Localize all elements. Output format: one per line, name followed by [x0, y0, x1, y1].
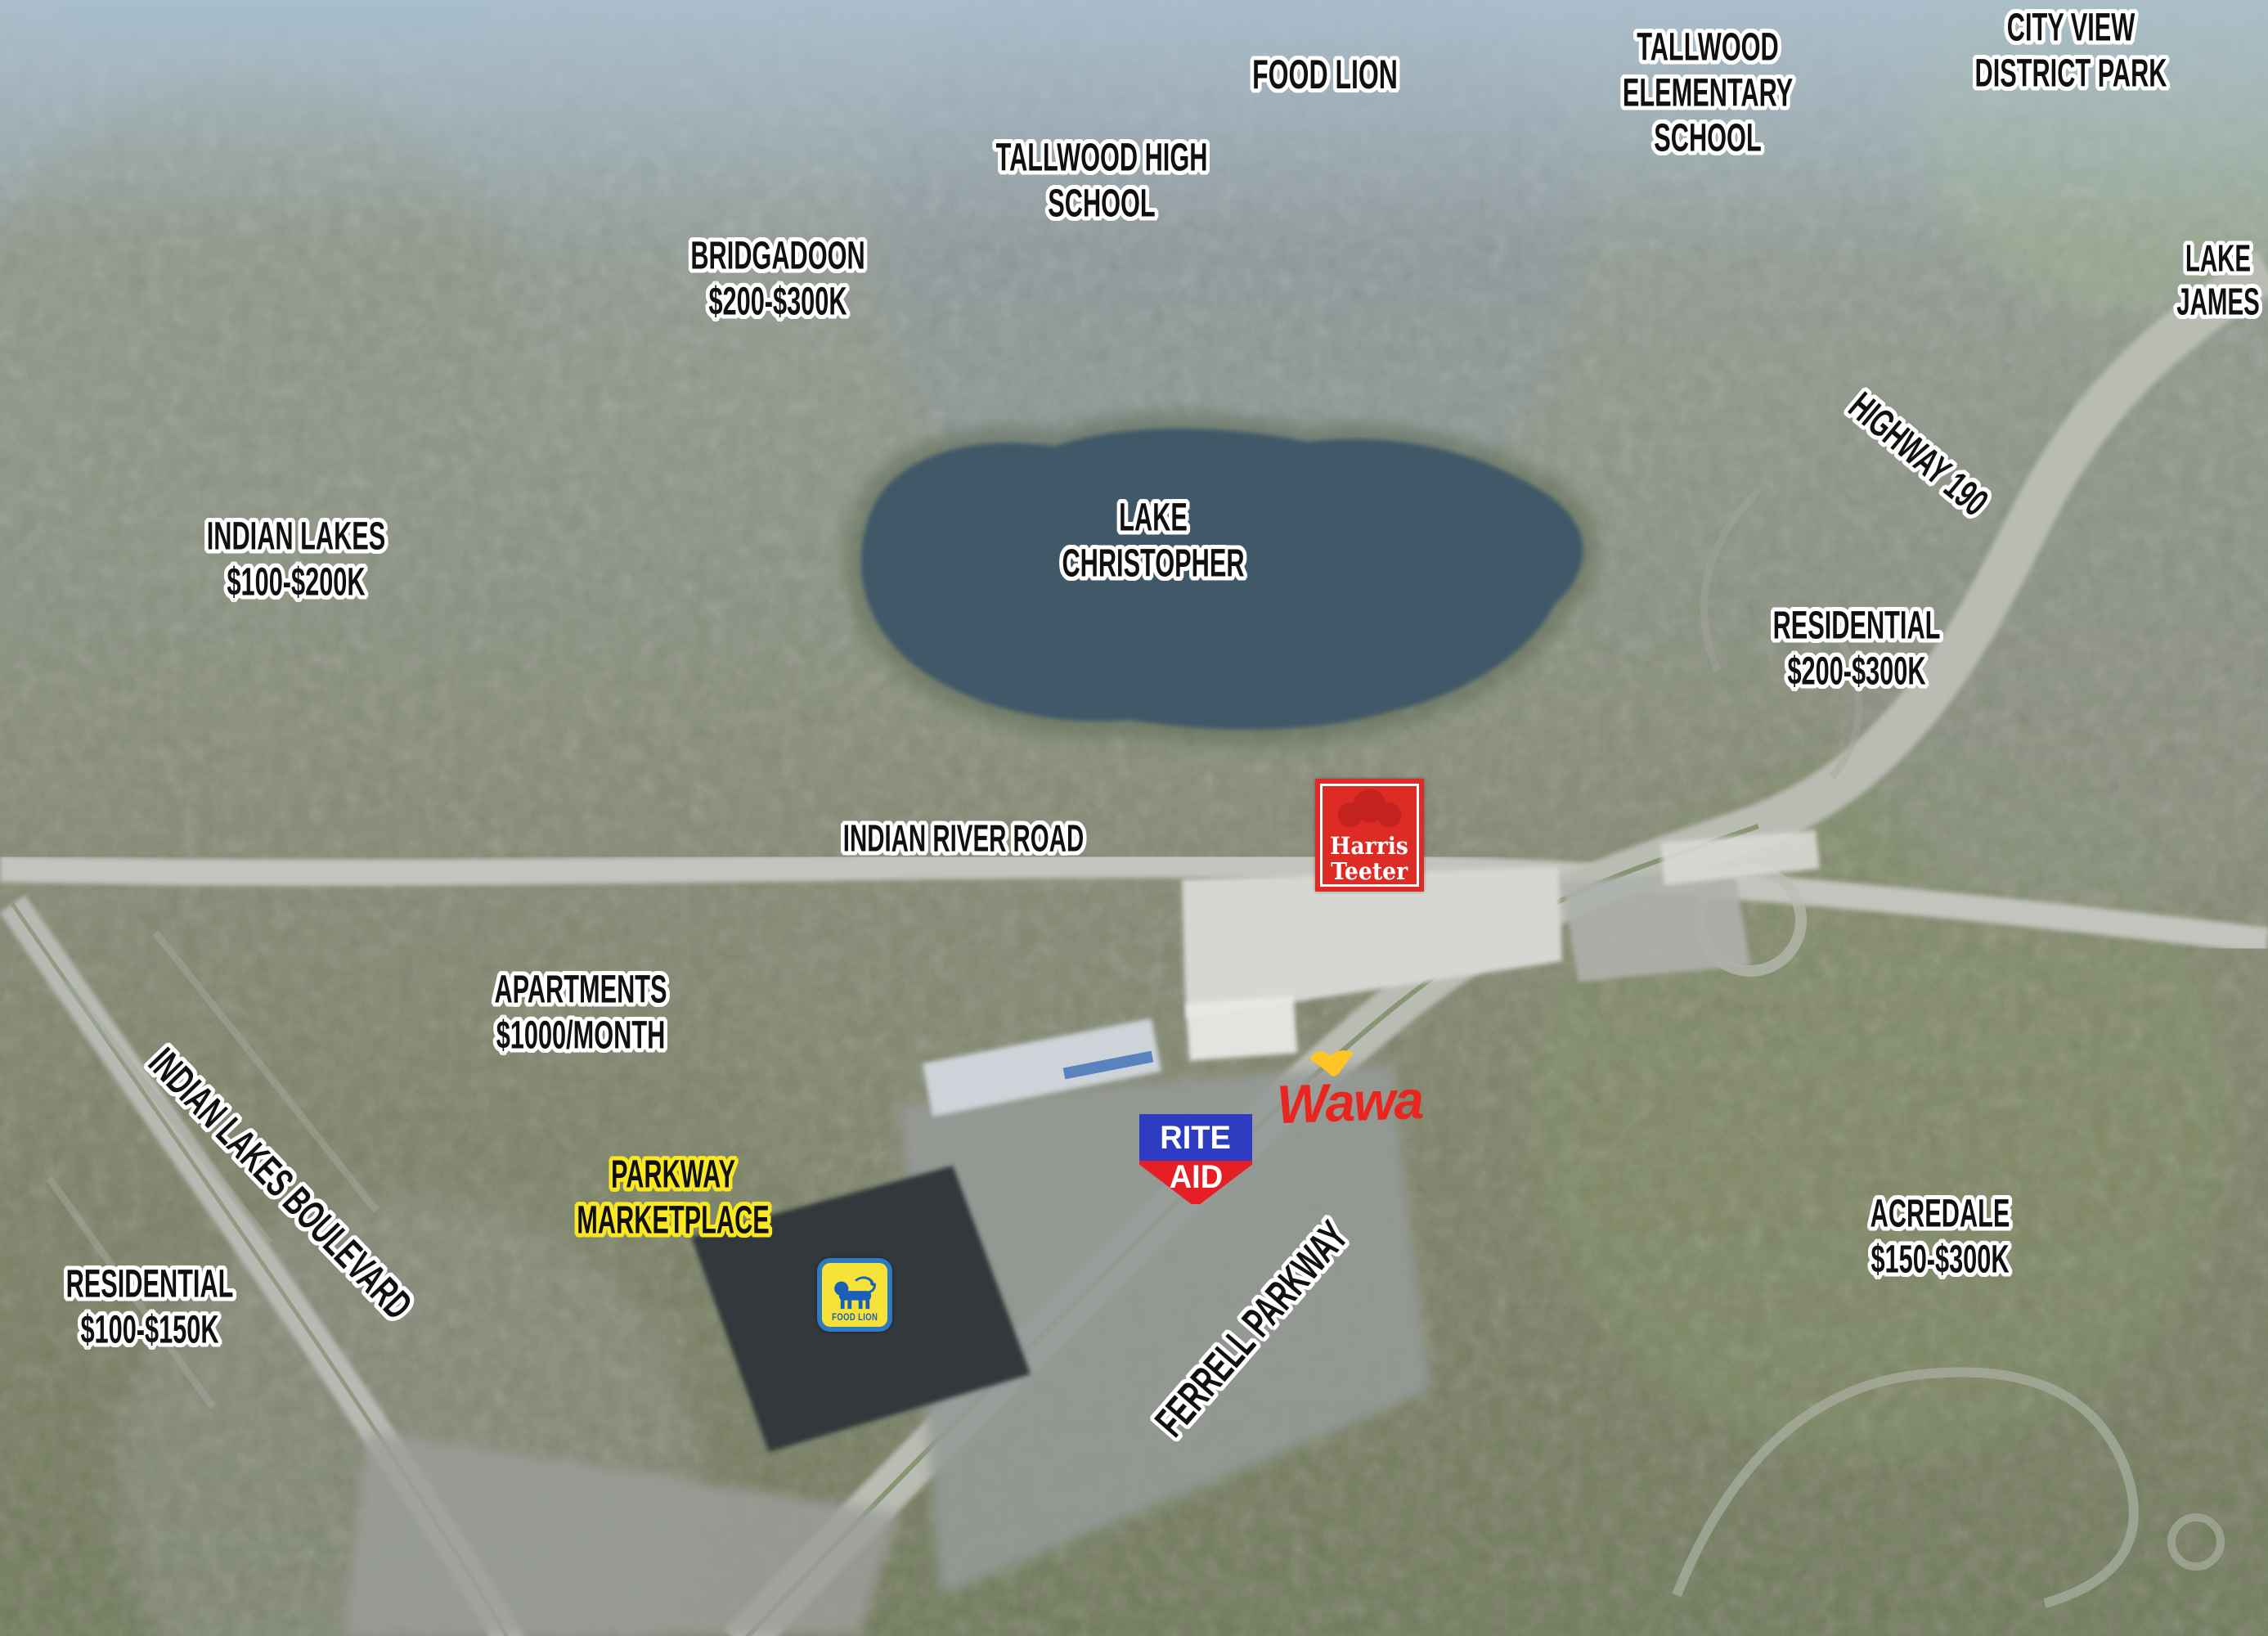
label-line: LAKE [1062, 495, 1244, 541]
label-line: DISTRICT PARK [1975, 51, 2167, 97]
label-line: MARKETPLACE [577, 1198, 770, 1243]
wawa-logo-text: Wawa [1263, 1075, 1436, 1130]
label-line: ACREDALE [1871, 1191, 2010, 1237]
label-line: RESIDENTIAL [1773, 603, 1941, 649]
label-price: $200-$300K [690, 279, 865, 325]
label-tallwood-high-school: TALLWOOD HIGH SCHOOL [996, 135, 1208, 226]
rite-aid-logo-top: RITE [1139, 1114, 1252, 1161]
label-indian-river-road: INDIAN RIVER ROAD [843, 816, 1084, 860]
label-residential-southwest: RESIDENTIAL $100-$150K [66, 1261, 234, 1352]
label-price: $1000/MONTH [494, 1013, 667, 1058]
food-lion-logo-inner: FOOD LION [822, 1263, 887, 1327]
label-line: LAKE [2176, 237, 2259, 281]
aerial-map: FOOD LION TALLWOOD ELEMENTARY SCHOOL CIT… [0, 0, 2268, 1636]
label-line: JAMES [2176, 281, 2259, 324]
label-lake-james: LAKE JAMES [2176, 237, 2259, 325]
label-apartments: APARTMENTS $1000/MONTH [494, 967, 667, 1058]
label-acredale: ACREDALE $150-$300K [1871, 1191, 2010, 1282]
label-line: TALLWOOD [1623, 25, 1793, 70]
rite-aid-logo-line: RITE [1161, 1121, 1232, 1154]
label-line: APARTMENTS [494, 967, 667, 1013]
label-line: RESIDENTIAL [66, 1261, 234, 1307]
label-bridgadoon: BRIDGADOON $200-$300K [690, 233, 865, 324]
label-lake-christopher: LAKE CHRISTOPHER [1062, 495, 1244, 586]
harris-teeter-logo-line: Teeter [1331, 859, 1408, 883]
label-indian-lakes: INDIAN LAKES $100-$200K [207, 514, 385, 605]
label-price: $100-$200K [207, 560, 385, 605]
label-line: SCHOOL [996, 181, 1208, 227]
label-line: PARKWAY [577, 1152, 770, 1198]
label-city-view-district-park: CITY VIEW DISTRICT PARK [1975, 5, 2167, 96]
harris-teeter-logo-line: Harris [1331, 834, 1409, 858]
label-line: BRIDGADOON [690, 233, 865, 279]
label-line: CITY VIEW [1975, 5, 2167, 51]
label-line: TALLWOOD HIGH [996, 135, 1208, 181]
label-price: $150-$300K [1871, 1237, 2010, 1283]
harris-teeter-logo: Harris Teeter [1315, 779, 1424, 892]
label-parkway-marketplace: PARKWAY MARKETPLACE [577, 1152, 770, 1243]
food-lion-logo-text: FOOD LION [832, 1313, 878, 1323]
label-price: $200-$300K [1773, 649, 1941, 694]
label-line: SCHOOL [1623, 116, 1793, 162]
label-line: ELEMENTARY [1623, 70, 1793, 116]
food-lion-lion-icon [831, 1275, 878, 1311]
aerial-photo-background [0, 0, 2268, 1636]
label-price: $100-$150K [66, 1307, 234, 1353]
food-lion-logo: FOOD LION [817, 1258, 892, 1332]
label-residential-northeast: RESIDENTIAL $200-$300K [1773, 603, 1941, 694]
label-line: CHRISTOPHER [1062, 541, 1244, 587]
wawa-logo: Wawa [1264, 1045, 1435, 1126]
label-line: INDIAN LAKES [207, 514, 385, 560]
label-tallwood-elementary: TALLWOOD ELEMENTARY SCHOOL [1623, 25, 1793, 161]
rite-aid-logo-line: AID [1169, 1161, 1222, 1193]
label-food-lion-area: FOOD LION [1252, 51, 1398, 98]
